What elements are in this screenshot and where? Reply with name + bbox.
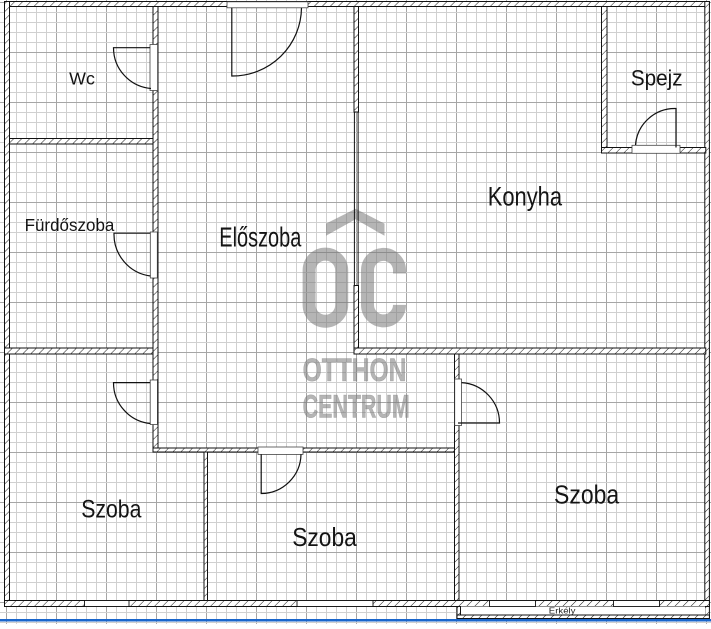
- svg-text:Konyha: Konyha: [488, 181, 563, 212]
- svg-text:Előszoba: Előszoba: [219, 222, 302, 253]
- svg-text:Szoba: Szoba: [81, 496, 141, 524]
- svg-text:Wc: Wc: [69, 69, 95, 89]
- svg-text:Szoba: Szoba: [292, 522, 357, 552]
- svg-text:Spejz: Spejz: [631, 65, 683, 90]
- svg-text:Erkély: Erkély: [549, 605, 577, 615]
- svg-text:Szoba: Szoba: [554, 482, 620, 510]
- svg-text:CENTRUM: CENTRUM: [303, 389, 410, 425]
- svg-text:Fürdőszoba: Fürdőszoba: [25, 215, 115, 235]
- svg-text:OTTHON: OTTHON: [303, 352, 407, 388]
